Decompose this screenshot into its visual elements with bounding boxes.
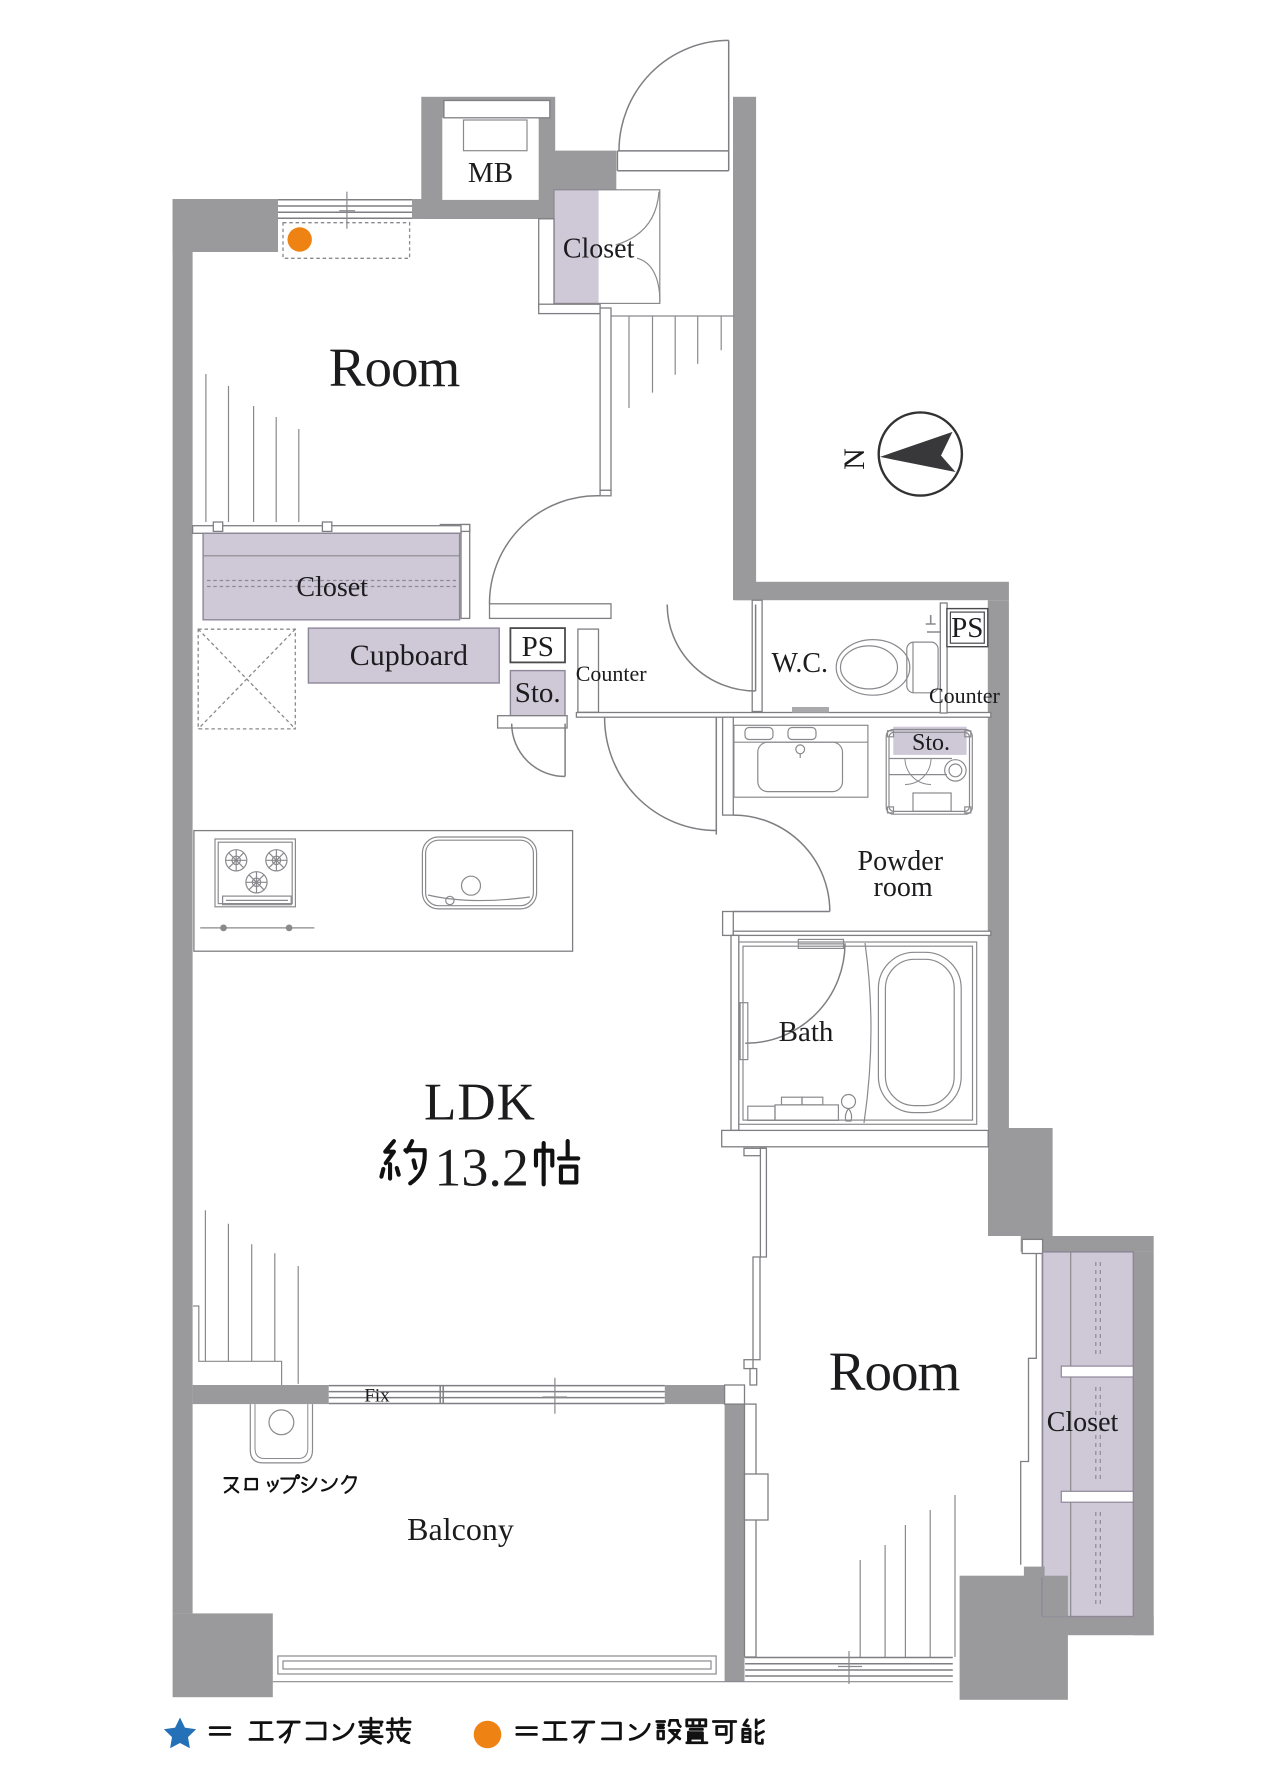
svg-text:Counter: Counter [576,661,648,686]
svg-text:Fix: Fix [364,1386,390,1407]
svg-text:Closet: Closet [1047,1407,1119,1438]
svg-text:Closet: Closet [296,572,368,603]
svg-text:PS: PS [951,612,983,644]
svg-text:Bath: Bath [779,1016,834,1048]
svg-text:Closet: Closet [563,234,635,265]
svg-text:Counter: Counter [929,683,1001,708]
svg-text:Balcony: Balcony [407,1511,514,1547]
svg-text:N: N [838,448,871,470]
svg-text:Sto.: Sto. [515,677,561,709]
svg-text:MB: MB [468,157,513,189]
svg-text:13.2: 13.2 [434,1138,529,1198]
svg-text:LDK: LDK [424,1074,536,1132]
svg-text:Sto.: Sto. [912,730,950,756]
svg-text:room: room [874,872,933,903]
svg-text:Room: Room [829,1341,960,1402]
svg-text:PS: PS [522,631,554,663]
svg-text:Room: Room [329,337,460,398]
svg-text:Cupboard: Cupboard [350,639,468,672]
svg-text:W.C.: W.C. [772,648,829,679]
